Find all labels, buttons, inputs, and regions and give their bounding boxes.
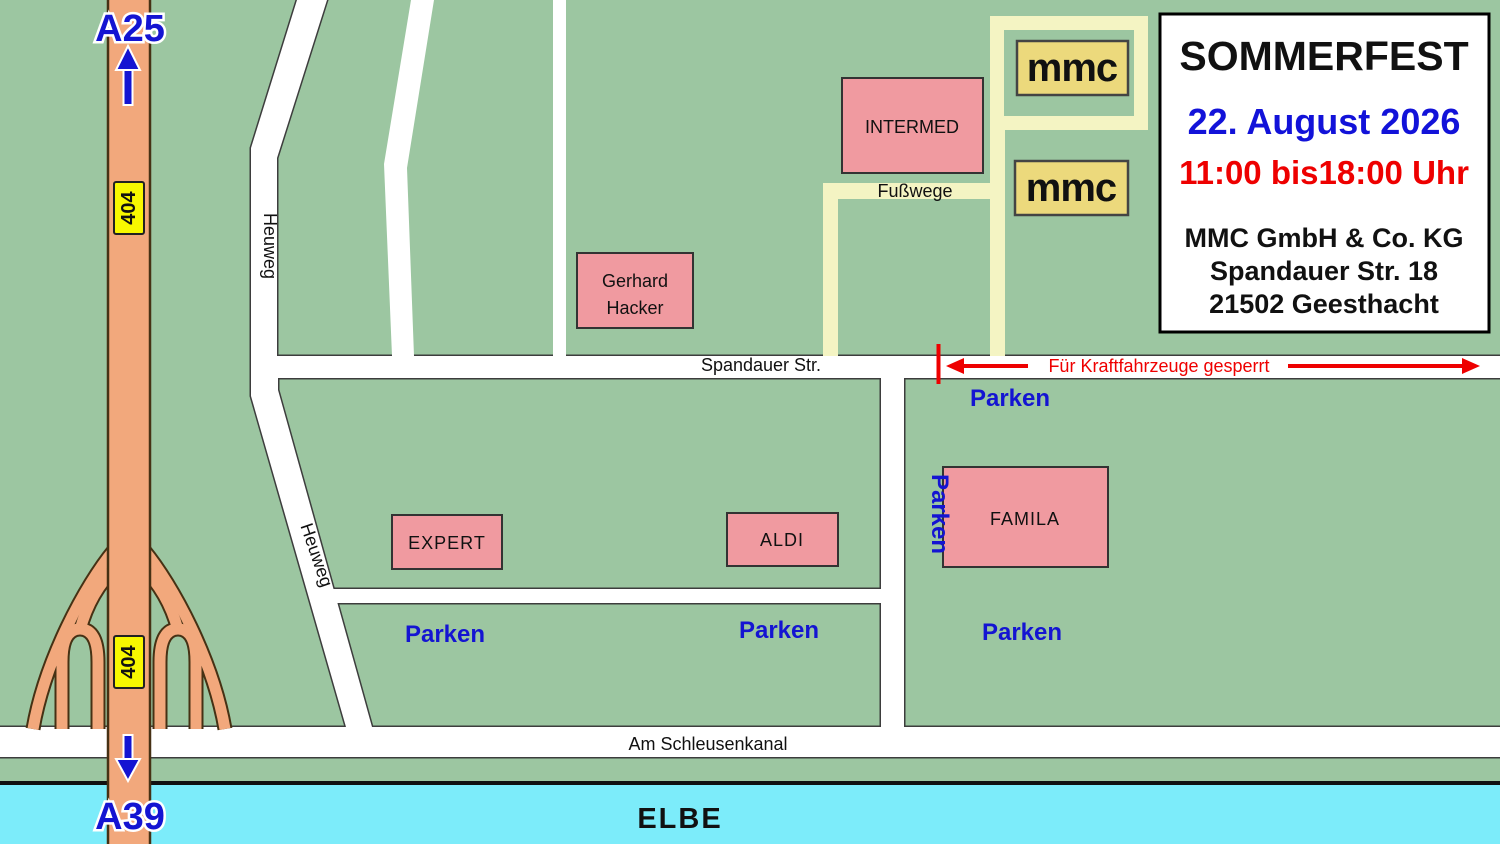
building-gerhard-label: Gerhard xyxy=(602,271,668,291)
closure-text: Für Kraftfahrzeuge gesperrt xyxy=(1048,356,1269,376)
event-title: SOMMERFEST xyxy=(1179,33,1468,79)
site-map: 404 404 A25 A39 INTERMED Gerhard Hacker … xyxy=(0,0,1500,844)
building-aldi-label: ALDI xyxy=(760,530,804,550)
parking-label-mid-left: Parken xyxy=(405,621,485,648)
street-label-heuweg-upper: Heuweg xyxy=(260,213,280,279)
closure-bar xyxy=(937,344,941,384)
event-city: 21502 Geesthacht xyxy=(1209,289,1439,319)
parking-label-right-side: Parken xyxy=(926,474,953,554)
building-expert: EXPERT xyxy=(392,515,502,569)
river-elbe xyxy=(0,783,1500,844)
highway-band xyxy=(108,0,150,844)
route-badge-bottom: 404 xyxy=(114,636,144,688)
building-aldi: ALDI xyxy=(727,513,838,566)
building-famila: FAMILA xyxy=(943,467,1108,567)
event-date: 22. August 2026 xyxy=(1188,101,1461,142)
building-expert-label: EXPERT xyxy=(408,533,486,553)
event-company: MMC GmbH & Co. KG xyxy=(1185,223,1464,253)
parking-label-right-top: Parken xyxy=(970,385,1050,412)
building-gerhard-hacker: Gerhard Hacker xyxy=(577,253,693,328)
building-intermed-label: INTERMED xyxy=(865,117,959,137)
building-famila-label: FAMILA xyxy=(990,509,1060,529)
parking-label-right-bottom: Parken xyxy=(982,619,1062,646)
building-hacker-label: Hacker xyxy=(606,298,663,318)
parking-label-mid-right: Parken xyxy=(739,617,819,644)
river-elbe-label: ELBE xyxy=(637,803,722,835)
mmc-logo-2-label: mmc xyxy=(1026,166,1117,210)
route-badge-top-label: 404 xyxy=(118,190,140,224)
mmc-logo-2: mmc xyxy=(1015,161,1128,215)
event-street: Spandauer Str. 18 xyxy=(1210,256,1438,286)
event-time: 11:00 bis18:00 Uhr xyxy=(1179,154,1469,191)
mmc-logo-1: mmc xyxy=(1017,41,1128,95)
street-label-fusswege: Fußwege xyxy=(877,181,952,201)
event-info-box: SOMMERFEST 22. August 2026 11:00 bis18:0… xyxy=(1160,14,1489,332)
street-label-schleusenkanal: Am Schleusenkanal xyxy=(628,734,787,754)
highway-a39-label: A39 xyxy=(95,796,165,838)
map-canvas: 404 404 A25 A39 INTERMED Gerhard Hacker … xyxy=(0,0,1500,844)
mmc-logo-1-label: mmc xyxy=(1027,46,1118,90)
highway-a25-label: A25 xyxy=(95,8,165,50)
route-badge-top: 404 xyxy=(114,182,144,234)
route-badge-bottom-label: 404 xyxy=(118,644,140,678)
building-intermed: INTERMED xyxy=(842,78,983,173)
street-label-spandauer: Spandauer Str. xyxy=(701,355,821,375)
